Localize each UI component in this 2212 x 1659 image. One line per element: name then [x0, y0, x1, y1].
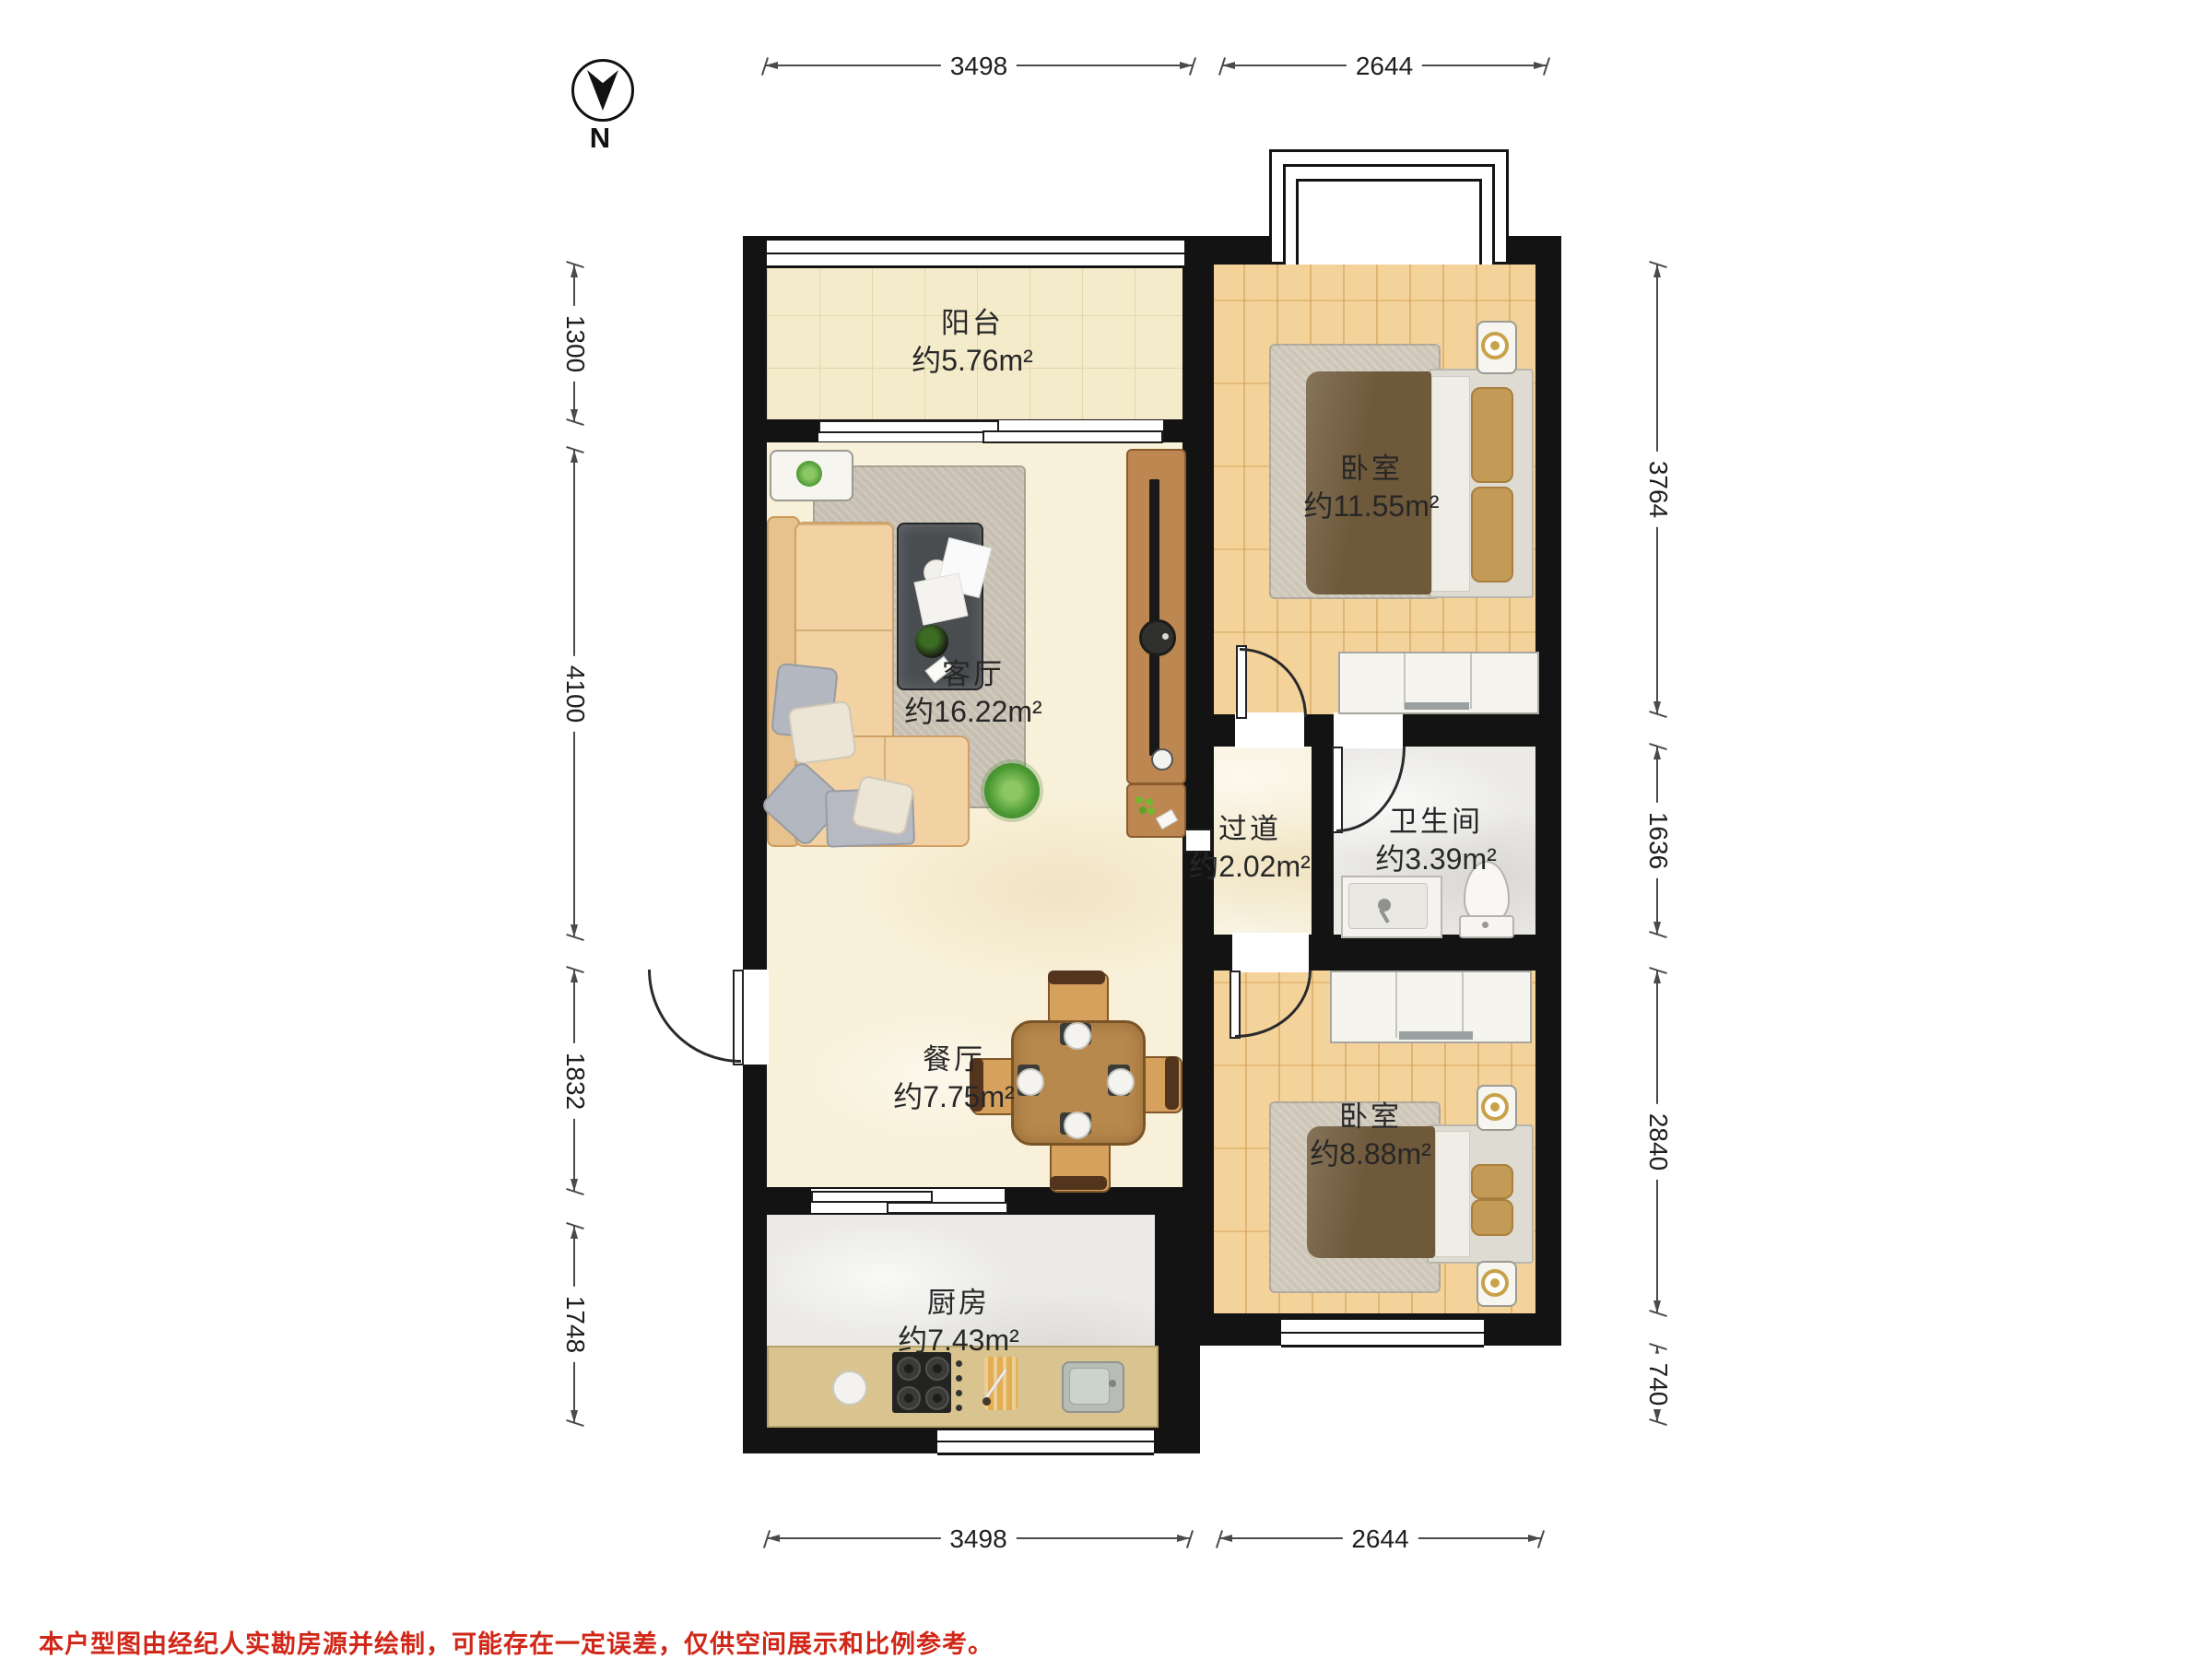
lamp-icon: [1481, 1269, 1509, 1297]
stove-knob: [956, 1360, 962, 1367]
kitchen-opening-step: [887, 1202, 1008, 1214]
plant-icon: [796, 461, 822, 487]
north-arrow-icon: [571, 59, 634, 122]
sofa-pillow: [851, 774, 915, 836]
wardrobe-divider: [1395, 972, 1397, 1038]
plate-icon: [1064, 1022, 1091, 1050]
bedroom-bottom-label: 卧室约8.88m²: [1310, 1099, 1431, 1172]
lamp-icon: [1481, 1093, 1509, 1121]
wardrobe-divider: [1404, 653, 1406, 709]
wall-segment: [743, 1065, 767, 1453]
plate-icon: [832, 1371, 867, 1406]
bed-pillow: [1471, 387, 1513, 483]
potted-plant-icon: [915, 625, 948, 658]
dimension-left-3: 1832: [573, 970, 575, 1192]
kitchen-label: 厨房约7.43m²: [898, 1285, 1019, 1359]
wall-segment: [1535, 236, 1561, 1346]
dimension-left-1: 1300: [573, 265, 575, 422]
bed-pillow: [1471, 487, 1513, 582]
wall-segment: [1312, 714, 1334, 971]
sliding-door-panel: [982, 430, 1163, 443]
stove-knob: [956, 1405, 962, 1411]
wall-segment: [1182, 236, 1214, 1346]
burner-icon: [897, 1386, 921, 1410]
knob-icon: [1151, 748, 1173, 771]
compass-label: N: [590, 122, 610, 155]
door-opening: [1232, 933, 1309, 972]
papers-icon: [914, 572, 969, 625]
dimension-right-2: 1636: [1656, 747, 1658, 935]
dimension-right-3: 2840: [1656, 971, 1658, 1313]
bed-pillow: [1471, 1164, 1513, 1199]
lamp-icon: [1481, 332, 1509, 359]
dimension-top-2: 2644: [1222, 65, 1547, 66]
stove-knob: [956, 1375, 962, 1382]
tv-cabinet-lower: [1126, 783, 1186, 838]
dimension-right-1: 3764: [1656, 265, 1658, 714]
toilet-button: [1482, 922, 1488, 928]
dimension-bottom-1: 3498: [767, 1537, 1190, 1539]
speaker-icon: [1139, 619, 1176, 656]
burner-icon: [925, 1357, 949, 1381]
plate-icon: [1107, 1068, 1135, 1096]
plate-icon: [1064, 1112, 1091, 1139]
floorplan-canvas: 阳台约5.76m² 卧室约11.55m² 客厅约16.22m² 过道约2.02m…: [0, 0, 2212, 1659]
dimension-left-4: 1748: [573, 1226, 575, 1423]
wall-segment: [743, 236, 767, 970]
chair-rail: [1050, 1176, 1107, 1190]
bed-mattress: [1435, 1131, 1470, 1257]
plate-icon: [1017, 1068, 1044, 1096]
kitchen-window: [937, 1428, 1154, 1455]
door-opening: [1334, 712, 1403, 748]
dimension-bottom-2: 2644: [1219, 1537, 1541, 1539]
sink-basin: [1069, 1368, 1110, 1405]
speaker-dot: [1162, 633, 1169, 640]
disclaimer-text: 本户型图由经纪人实勘房源并绘制，可能存在一定误差，仅供空间展示和比例参考。: [39, 1624, 994, 1659]
dimension-right-4: 740: [1656, 1347, 1658, 1422]
burner-icon: [897, 1357, 921, 1381]
bedroom-top-label: 卧室约11.55m²: [1303, 451, 1439, 524]
burner-icon: [925, 1386, 949, 1410]
wall-segment: [1155, 1187, 1200, 1453]
clover-icon: [1135, 796, 1143, 804]
drain-dot: [1109, 1380, 1116, 1387]
balcony-window: [767, 238, 1184, 268]
tv-icon: [1149, 479, 1159, 756]
stove-knob: [956, 1390, 962, 1396]
dimension-left-2: 4100: [573, 450, 575, 937]
wardrobe-handle: [1399, 1031, 1473, 1040]
wardrobe-handle: [1405, 702, 1469, 710]
chair-rail: [1165, 1056, 1179, 1110]
bed-pillow: [1471, 1199, 1513, 1236]
sofa-pillow: [787, 700, 857, 766]
entry-door-arc: [648, 970, 741, 1063]
chair-rail: [1048, 971, 1105, 984]
balcony-label: 阳台约5.76m²: [912, 305, 1033, 379]
bathroom-label: 卫生间约3.39m²: [1375, 804, 1497, 877]
bedroom-bottom-window: [1281, 1317, 1484, 1347]
entry-opening: [741, 970, 769, 1065]
wardrobe-divider: [1462, 972, 1464, 1038]
living-label: 客厅约16.22m²: [904, 656, 1041, 730]
sliding-door-panel: [818, 420, 999, 433]
hallway-label: 过道约2.02m²: [1189, 811, 1311, 885]
wardrobe-divider: [1470, 653, 1472, 709]
dimension-top-1: 3498: [765, 65, 1193, 66]
dining-label: 餐厅约7.75m²: [893, 1041, 1015, 1115]
floor-plant-icon: [984, 763, 1040, 818]
bay-window-frame: [1296, 179, 1482, 265]
